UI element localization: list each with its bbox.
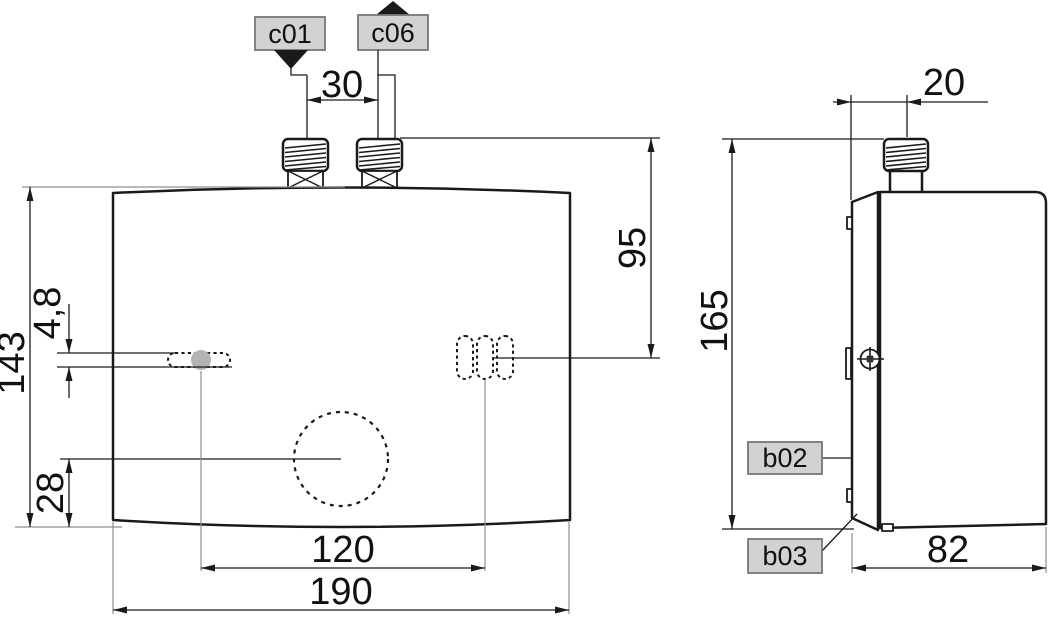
front-housing-outline xyxy=(113,188,570,528)
dim-knob-offset: 28 xyxy=(30,459,73,527)
dim-keyhole-height-value: 4,8 xyxy=(27,287,69,340)
callout-c01: c01 xyxy=(255,17,325,75)
dim-pipe-to-slot-value: 95 xyxy=(612,227,654,269)
callout-c06-arrow-icon xyxy=(376,1,410,15)
dim-pipe-spacing: 30 xyxy=(307,64,378,139)
bottom-tab xyxy=(882,524,893,531)
drawing-canvas: c01 c06 30 143 xyxy=(0,0,1049,619)
callout-c06-label: c06 xyxy=(371,18,415,48)
callout-b03: b03 xyxy=(748,514,857,573)
callout-c01-arrow-icon xyxy=(274,50,308,69)
inlet-pipe xyxy=(283,139,328,188)
dim-pipe-spacing-value: 30 xyxy=(321,64,363,106)
callout-b03-label: b03 xyxy=(762,541,807,571)
callout-c01-leader xyxy=(291,67,307,75)
callout-c01-label: c01 xyxy=(268,19,312,49)
front-view: c01 c06 30 143 xyxy=(0,1,660,614)
dim-mounting-spacing-value: 120 xyxy=(311,529,374,571)
dim-body-width-value: 190 xyxy=(309,571,372,613)
dimension-drawing: c01 c06 30 143 xyxy=(0,0,1049,619)
side-pipe xyxy=(884,139,928,171)
side-housing-outline xyxy=(880,192,1046,528)
plate-clip-top xyxy=(847,217,852,229)
side-view: 20 165 82 b02 xyxy=(694,62,1046,573)
dim-overall-height-value: 165 xyxy=(694,289,736,352)
callout-c06: c06 xyxy=(358,1,428,139)
plate-clip-bottom xyxy=(847,489,852,502)
dim-depth: 82 xyxy=(852,527,1046,573)
callout-b02: b02 xyxy=(748,442,852,474)
outlet-pipe xyxy=(357,139,402,188)
dim-depth-value: 82 xyxy=(927,529,969,571)
dim-knob-offset-value: 28 xyxy=(30,472,72,514)
plate-clip-middle xyxy=(846,348,851,379)
dim-body-height-value: 143 xyxy=(0,331,33,394)
dim-wall-to-pipe-value: 20 xyxy=(923,62,965,104)
callout-b02-label: b02 xyxy=(762,443,807,473)
callout-c06-leader xyxy=(378,50,395,139)
screw-center xyxy=(867,356,874,363)
